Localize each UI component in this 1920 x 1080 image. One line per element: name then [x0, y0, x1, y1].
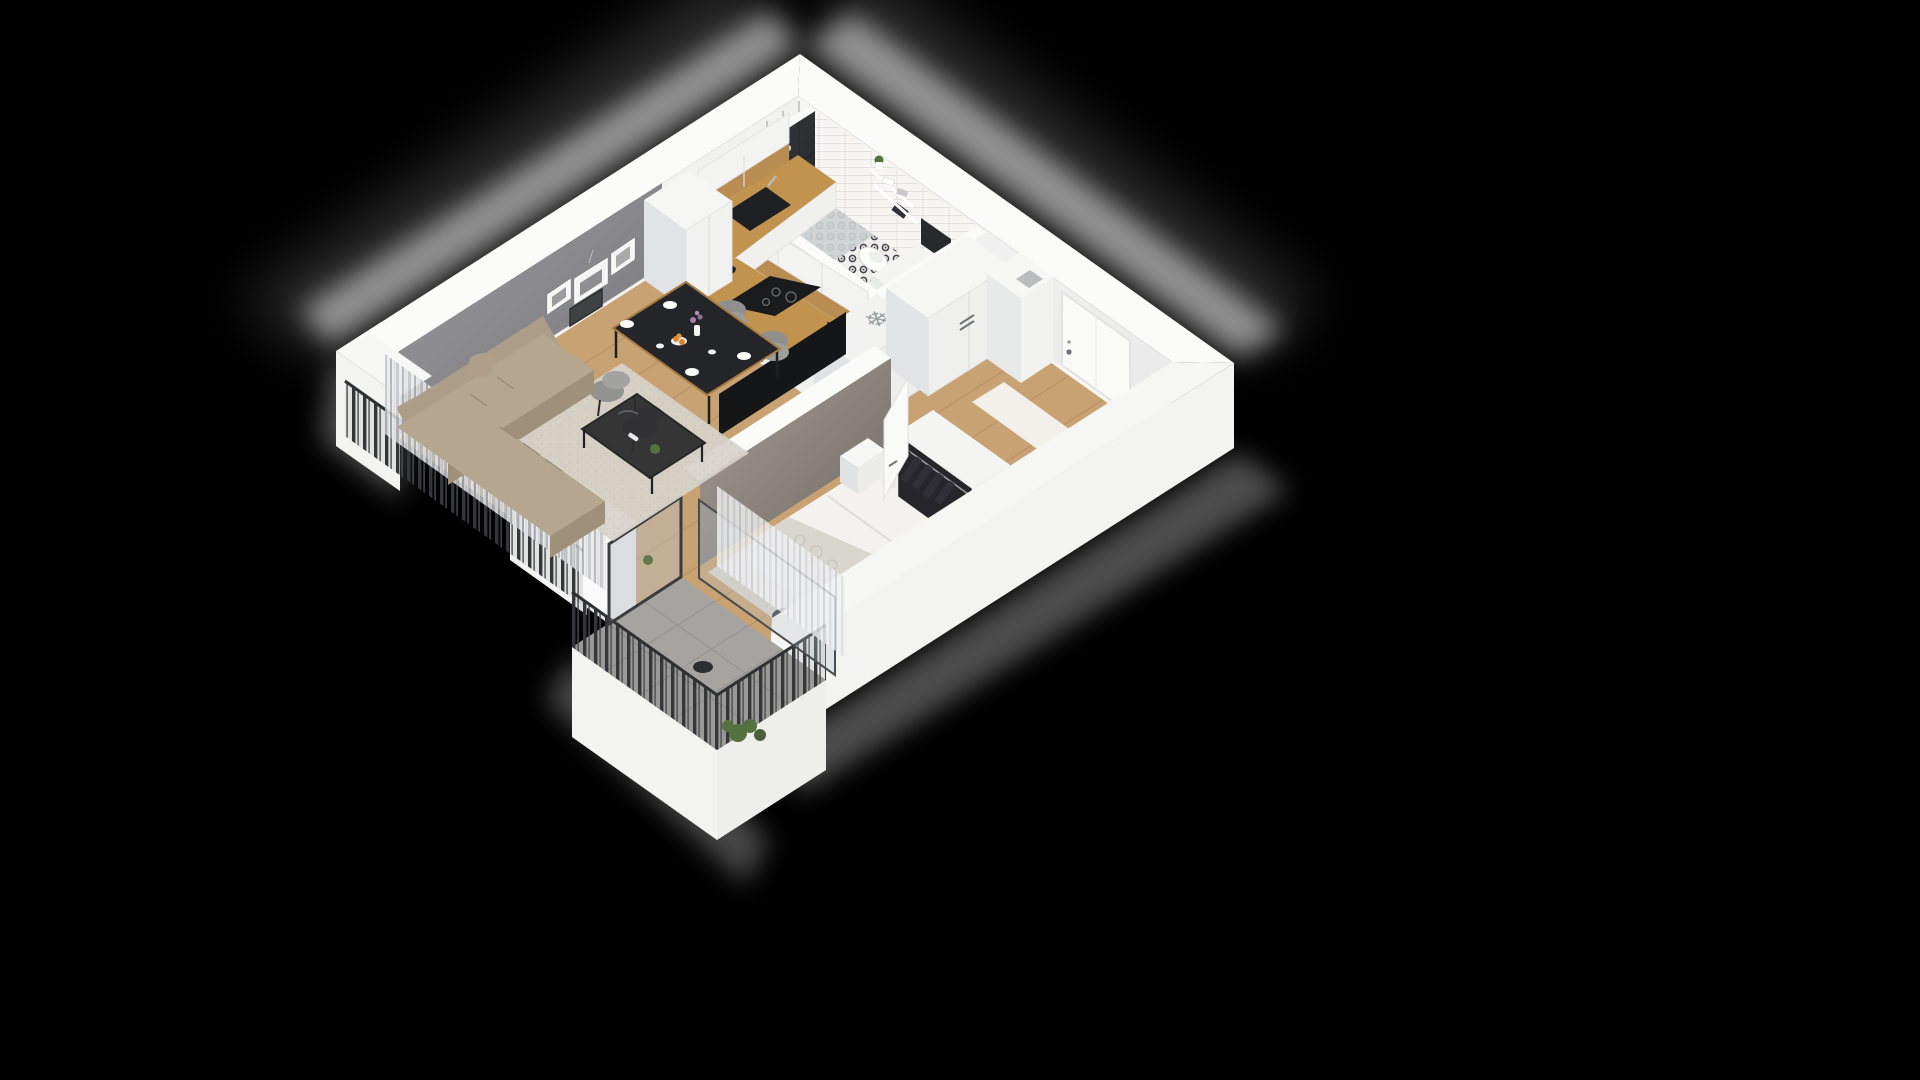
balcony-stool — [693, 661, 713, 673]
cup-2 — [656, 344, 664, 349]
flower-2 — [697, 314, 702, 319]
plate-4 — [620, 320, 634, 328]
planter-by-door — [643, 555, 653, 565]
plant-pot — [876, 162, 882, 169]
plate-1 — [663, 301, 677, 309]
plate-2 — [737, 352, 751, 360]
entrance-door-handle — [1066, 349, 1071, 354]
cup-1 — [708, 350, 716, 355]
apartment-render: ❄ — [0, 0, 1920, 1080]
entrance-door-lock — [1067, 340, 1070, 343]
flower-1 — [690, 317, 696, 323]
orange-2 — [679, 339, 685, 345]
render-canvas: ❄ — [0, 0, 1920, 1080]
plate-3 — [685, 368, 699, 376]
flower-3 — [695, 311, 699, 315]
coffee-table-plant — [650, 444, 660, 454]
vase — [694, 325, 700, 336]
chimney-pier — [987, 253, 1053, 383]
orange-3 — [676, 333, 681, 338]
chair-1-seat — [602, 371, 630, 389]
